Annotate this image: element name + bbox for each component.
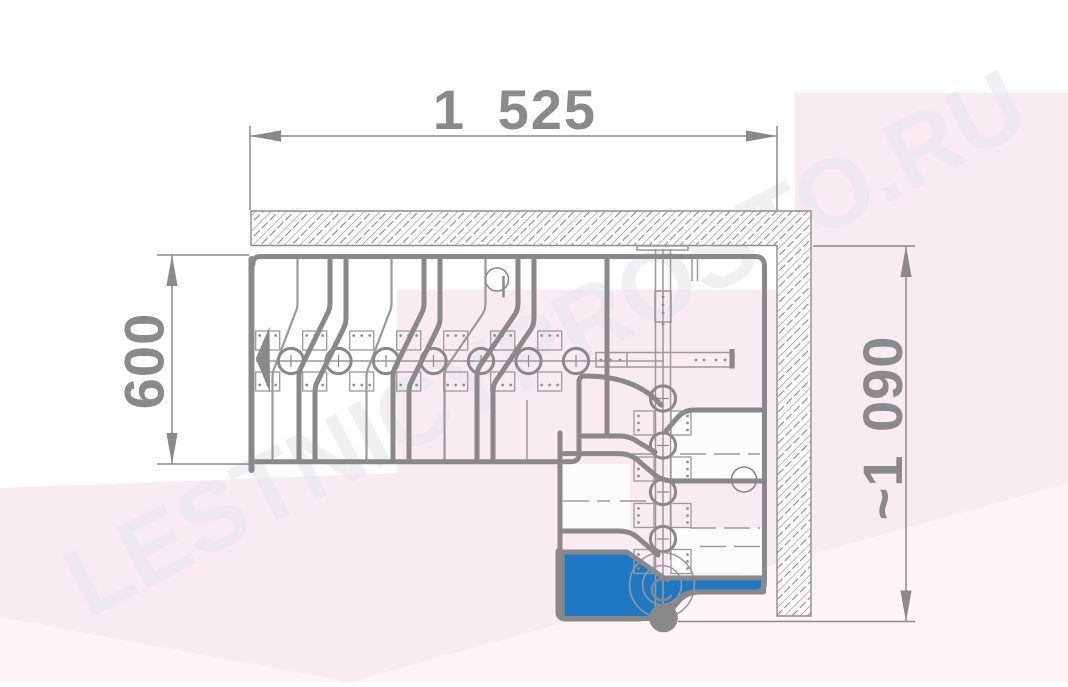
svg-text:600: 600: [113, 313, 176, 409]
svg-text:~1 090: ~1 090: [851, 336, 914, 521]
svg-text:1 525: 1 525: [433, 78, 597, 141]
